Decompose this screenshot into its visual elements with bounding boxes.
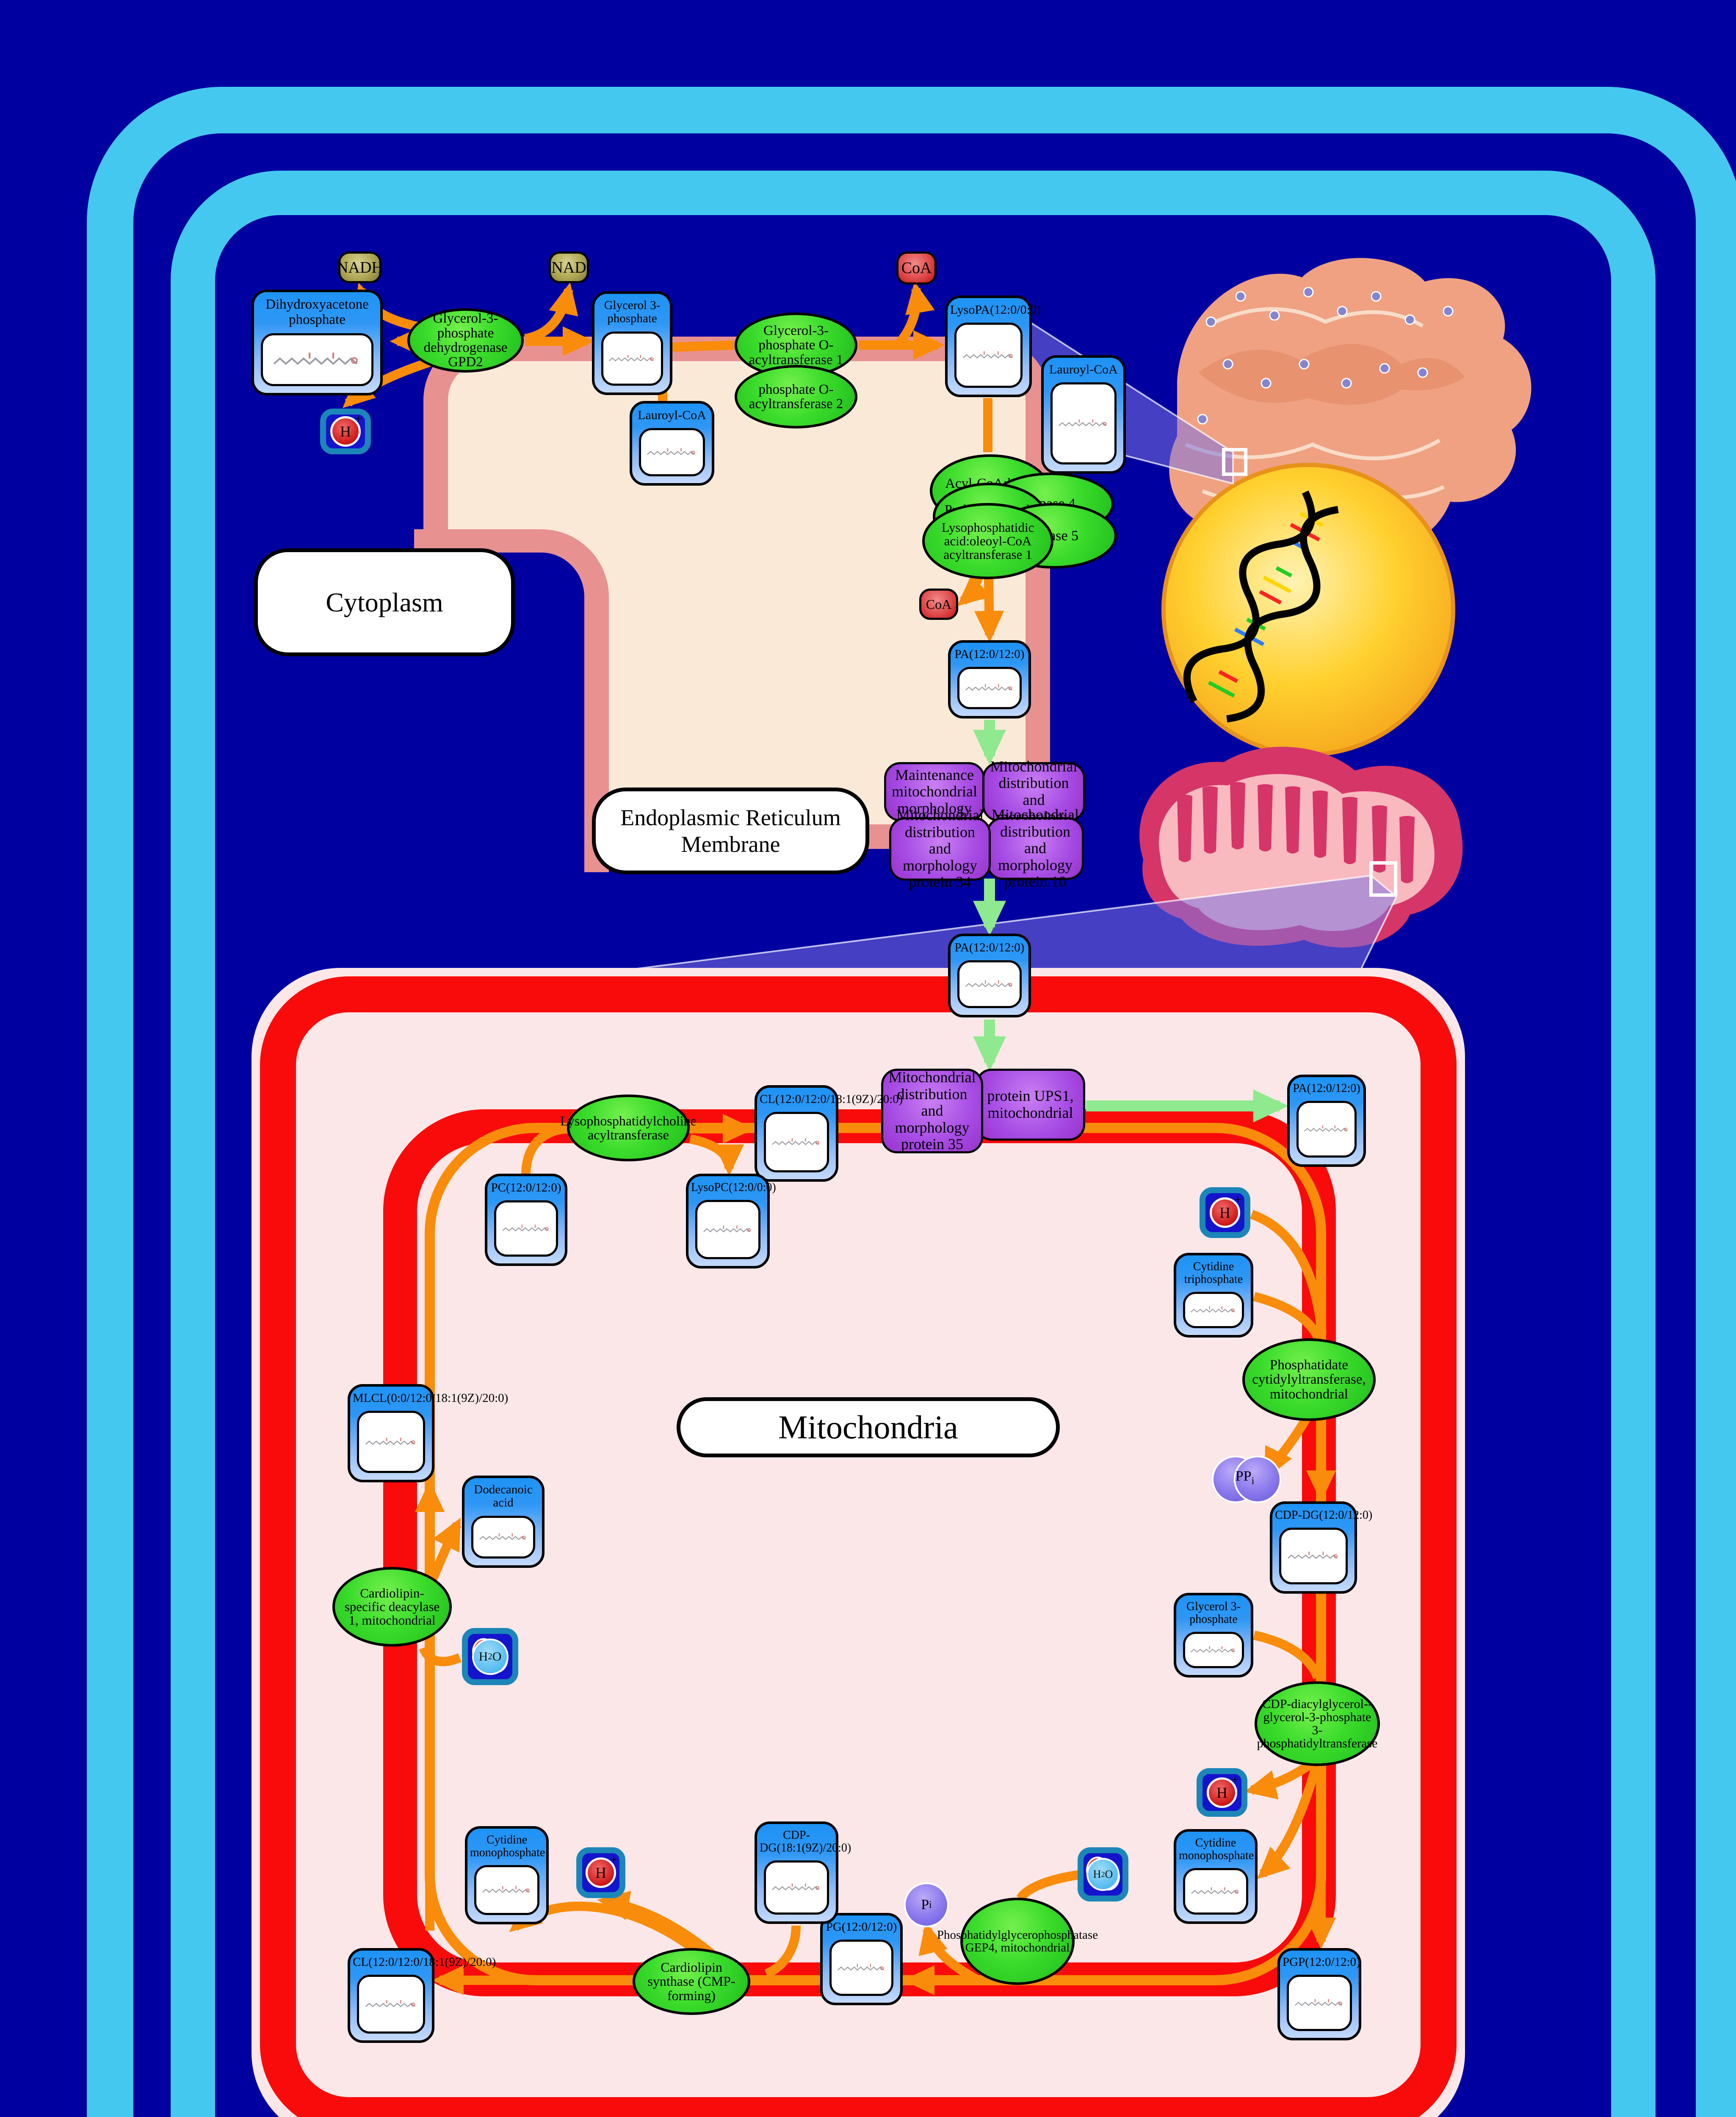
- metabolite-cmp-right[interactable]: Cytidine monophosphate: [1174, 1829, 1258, 1924]
- h-plus-badge-cytoplasm[interactable]: H+: [320, 409, 371, 454]
- metabolite-cl-bottom[interactable]: CL(12:0/12:0/18:1(9Z)/20:0): [348, 1948, 434, 2043]
- coa-badge-er[interactable]: CoA: [919, 589, 958, 620]
- enzyme-gpd2[interactable]: Glycerol-3-phosphate dehydrogenase GPD2: [407, 308, 524, 373]
- h2o-badge-left[interactable]: H2O: [462, 1628, 518, 1685]
- metabolite-dodecanoic[interactable]: Dodecanoic acid: [462, 1476, 545, 1568]
- enzyme-cdpdggp[interactable]: CDP-diacylglycerol--glycerol-3-phosphate…: [1255, 1681, 1380, 1766]
- coa-badge-top[interactable]: CoA: [896, 251, 937, 285]
- metabolite-g3p-mito[interactable]: Glycerol 3-phosphate: [1174, 1593, 1253, 1678]
- metabolite-cmp-left[interactable]: Cytidine monophosphate: [465, 1826, 549, 1924]
- metabolite-ctp[interactable]: Cytidine triphosphate: [1174, 1253, 1253, 1338]
- metabolite-pgp[interactable]: PGP(12:0/12:0): [1277, 1948, 1361, 2040]
- protein-mdm34-box[interactable]: Mitochondrial distribution and morpholog…: [889, 817, 991, 881]
- metabolite-pc[interactable]: PC(12:0/12:0): [485, 1174, 567, 1266]
- metabolite-lysopa[interactable]: LysoPA(12:0/0:0): [945, 296, 1032, 397]
- metabolite-lauroyl-coa-left[interactable]: Lauroyl-CoA: [630, 401, 714, 486]
- protein-mdm35-box[interactable]: Mitochondrial distribution and morpholog…: [881, 1069, 983, 1153]
- nad-badge[interactable]: NAD: [549, 251, 589, 283]
- coa-label: CoA: [901, 259, 932, 277]
- enzyme-pcyt[interactable]: Phosphatidate cytidylyltransferase, mito…: [1242, 1338, 1376, 1421]
- nad-label: NAD: [551, 258, 586, 277]
- h2o-icon: H2O: [1086, 1858, 1120, 1891]
- metabolite-lauroyl-coa-right[interactable]: Lauroyl-CoA: [1041, 355, 1126, 474]
- metabolite-mlcl[interactable]: MLCL(0:0/12:0/18:1(9Z)/20:0): [348, 1384, 434, 1482]
- metabolite-cl-top[interactable]: CL(12:0/12:0/18:1(9Z)/20:0): [755, 1085, 838, 1182]
- metabolite-g3p-top[interactable]: Glycerol 3-phosphate: [592, 291, 672, 395]
- h-plus-icon: H+: [1210, 1197, 1240, 1228]
- enzyme-deacylase1[interactable]: Cardiolipin-specific deacylase 1, mitoch…: [332, 1567, 452, 1647]
- h-plus-badge-right-bottom[interactable]: H+: [1197, 1768, 1247, 1817]
- enzyme-gep4[interactable]: Phosphatidylglycerophosphatase GEP4, mit…: [960, 1898, 1075, 1985]
- ppi-badge[interactable]: PPi: [1212, 1454, 1280, 1501]
- metabolite-pg[interactable]: PG(12:0/12:0): [820, 1913, 903, 2005]
- er-membrane-label: Endoplasmic Reticulum Membrane: [592, 788, 869, 874]
- nadh-label: NADH: [337, 258, 383, 277]
- metabolite-dhap[interactable]: Dihydroxyacetone phosphate: [252, 290, 383, 395]
- metabolite-cdp-dg[interactable]: CDP-DG(12:0/12:0): [1270, 1501, 1357, 1594]
- pi-badge[interactable]: Pi: [904, 1882, 949, 1927]
- enzyme-oat2[interactable]: phosphate O-acyltransferase 2: [735, 365, 857, 428]
- protein-mdm10-box[interactable]: Mitochondrial distribution and morpholog…: [987, 817, 1084, 880]
- pathway-canvas: NADH NAD CoA CoA H+ H+ H+ H+ H2O H2O Pi …: [0, 0, 1736, 2117]
- protein-ups1-box[interactable]: protein UPS1, mitochondrial: [976, 1069, 1085, 1141]
- coa-label: CoA: [926, 597, 951, 612]
- metabolite-pa-outer[interactable]: PA(12:0/12:0): [948, 934, 1031, 1017]
- cytoplasm-label: Cytoplasm: [254, 548, 515, 656]
- metabolite-lysopc[interactable]: LysoPC(12:0/0:0): [686, 1174, 770, 1269]
- enzyme-lpaat1[interactable]: Lysophosphatidic acid:oleoyl-CoA acyltra…: [922, 503, 1053, 579]
- metabolite-pa-er[interactable]: PA(12:0/12:0): [948, 640, 1031, 719]
- h-plus-icon: H+: [1207, 1777, 1237, 1808]
- h-plus-badge-right-top[interactable]: H+: [1200, 1187, 1250, 1238]
- mitochondria-label: Mitochondria: [677, 1397, 1060, 1457]
- metabolite-pa-right[interactable]: PA(12:0/12:0): [1287, 1075, 1366, 1167]
- enzyme-cardiolipin-synthase[interactable]: Cardiolipin synthase (CMP-forming): [633, 1948, 750, 2015]
- nadh-badge[interactable]: NADH: [338, 251, 381, 283]
- enzyme-lpcat[interactable]: Lysophosphatidylcholine acyltransferase: [567, 1094, 690, 1161]
- h2o-badge-right[interactable]: H2O: [1078, 1847, 1128, 1901]
- h-plus-badge-bottom-left[interactable]: H+: [576, 1847, 625, 1898]
- h2o-icon: H2O: [472, 1639, 509, 1675]
- h-plus-icon: H+: [330, 416, 361, 447]
- metabolite-cdp-dg2[interactable]: CDP-DG(18:1(9Z)/20:0): [755, 1821, 838, 1924]
- h-plus-icon: H+: [586, 1857, 616, 1888]
